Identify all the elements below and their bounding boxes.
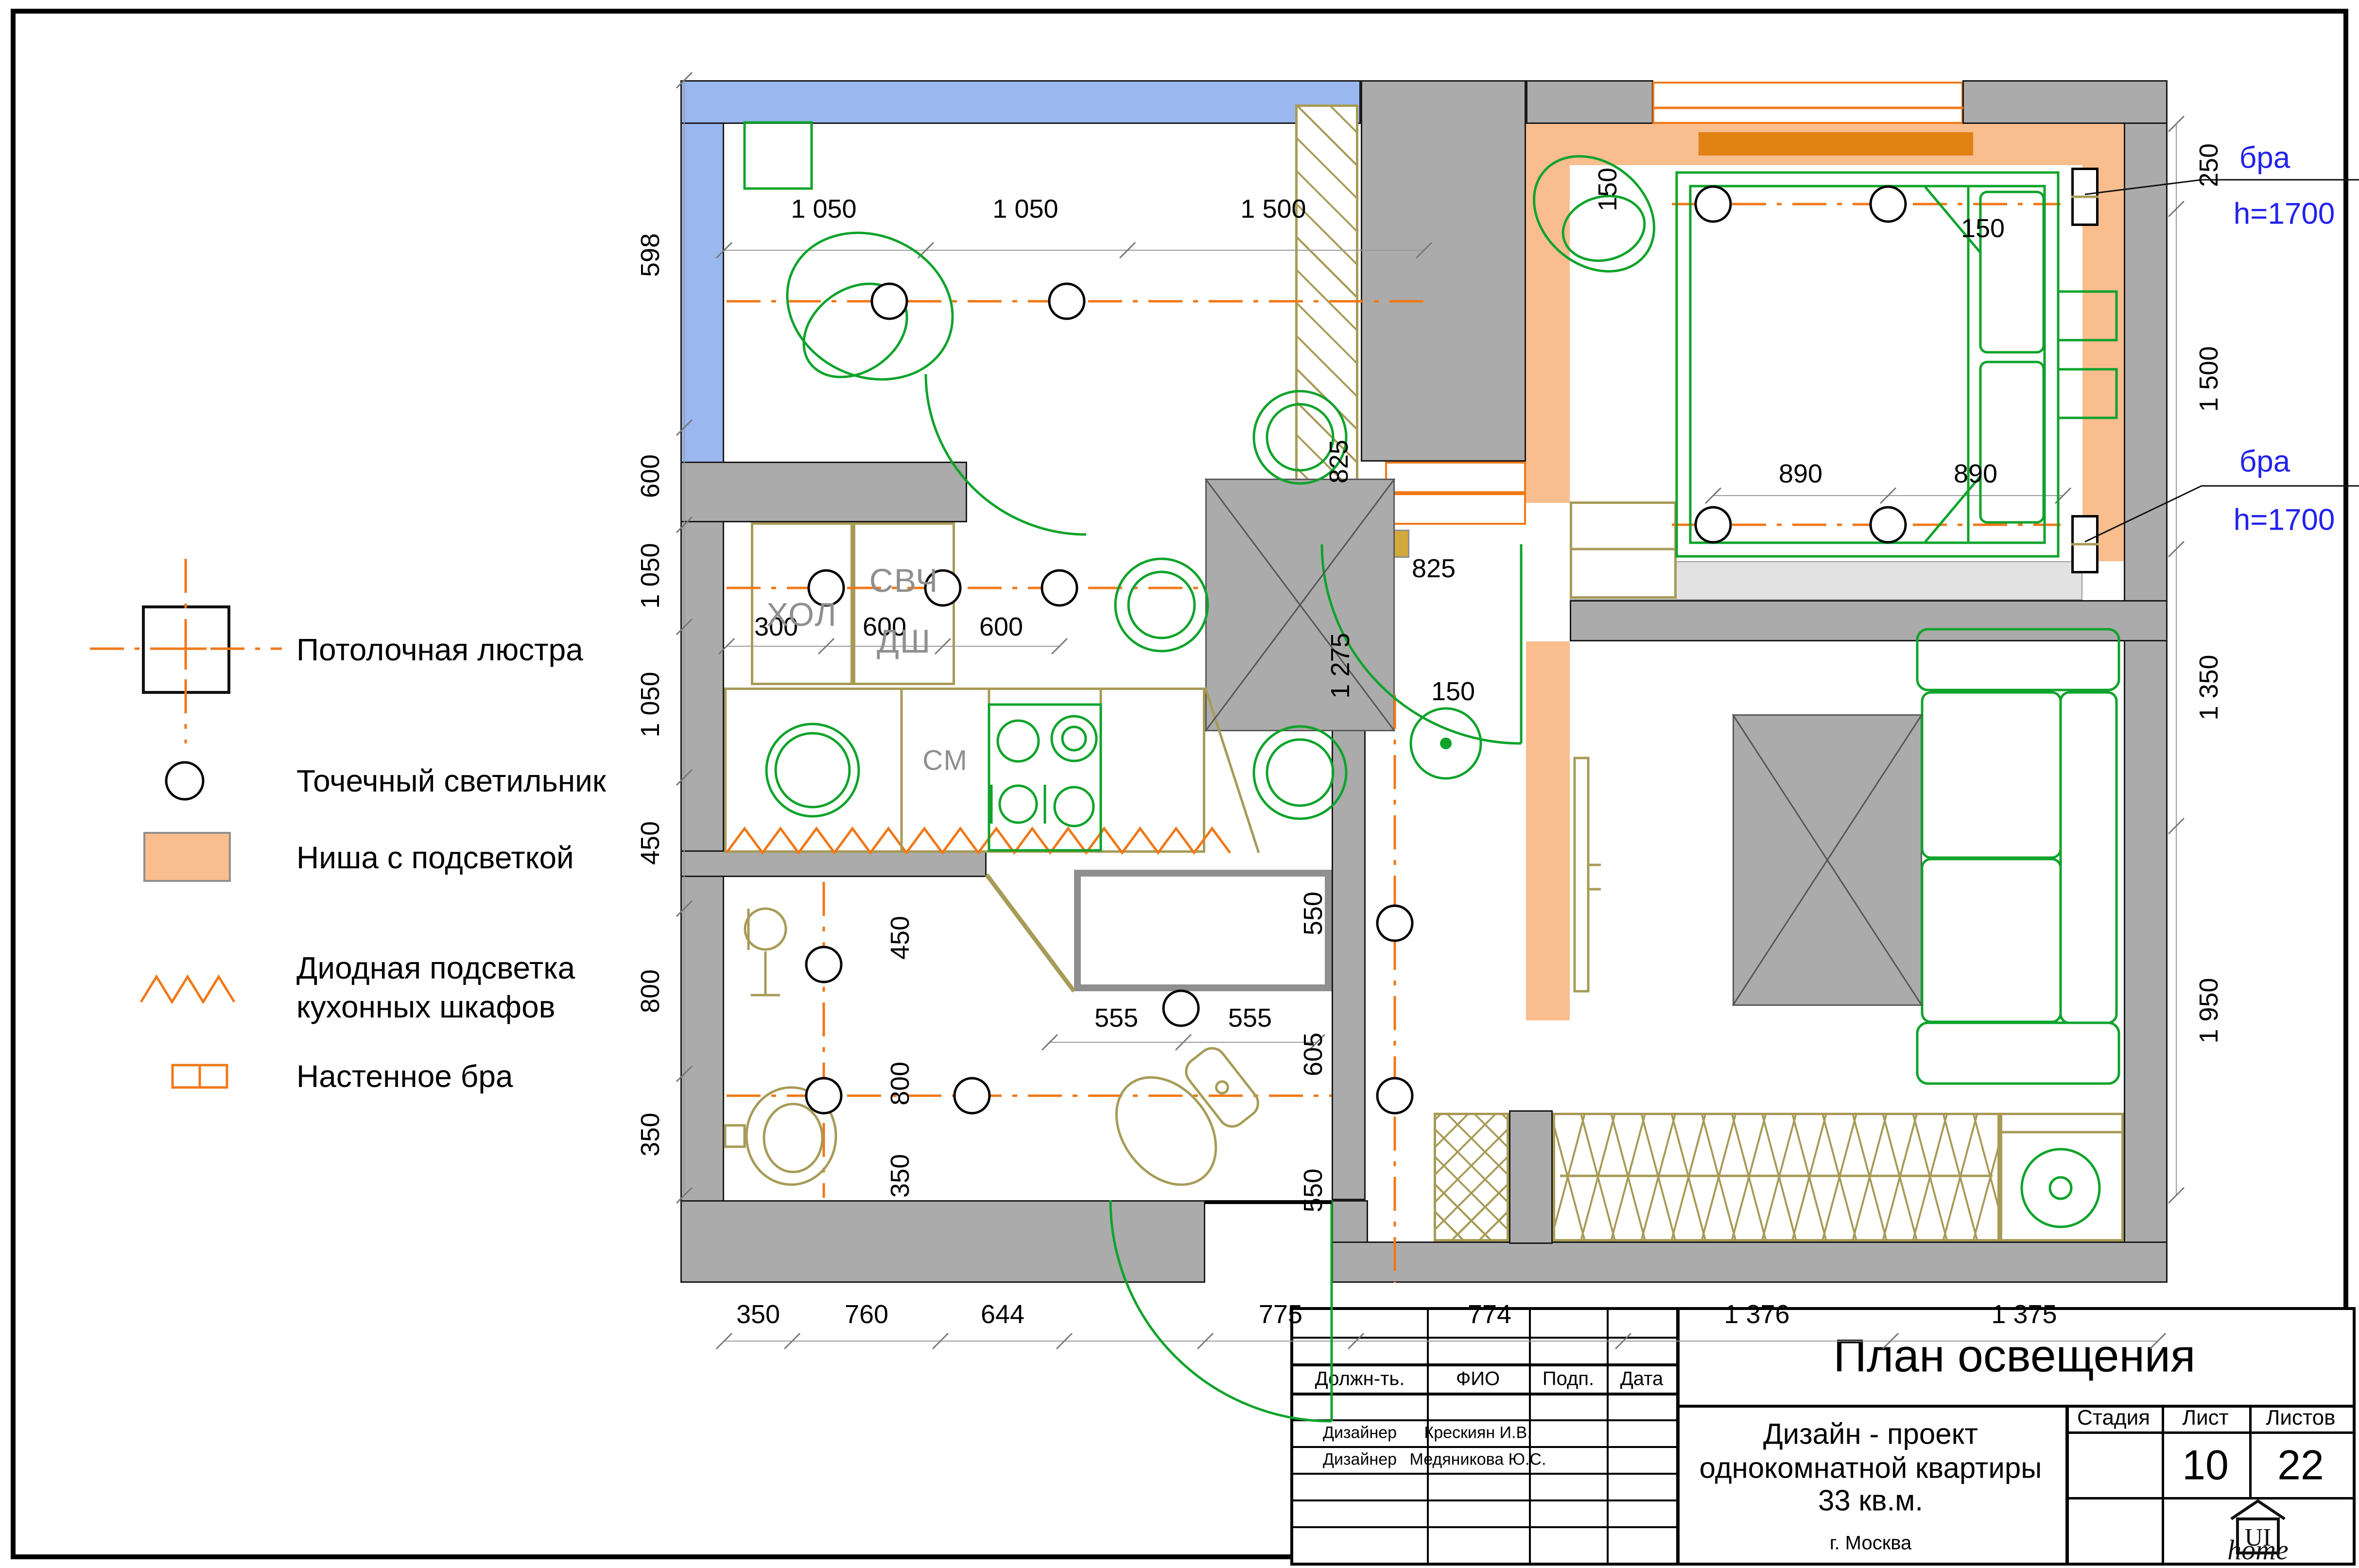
- legend-label-led-2: кухонных шкафов: [296, 989, 555, 1025]
- fixtures-tan: [725, 549, 2124, 1204]
- legend-label-sconce: Настенное бра: [296, 1058, 513, 1094]
- dim-label: 550: [1298, 1169, 1328, 1212]
- dim-label: 605: [1298, 1033, 1328, 1076]
- dim-label: 825: [1412, 553, 1456, 584]
- dim-label: 1 500: [2194, 346, 2224, 412]
- dim-label: 250: [2194, 143, 2224, 187]
- dim-label: 1 950: [2194, 978, 2224, 1043]
- stove-icon: [989, 705, 1101, 850]
- dim-label: 600: [635, 454, 665, 498]
- dim-label: 890: [1954, 459, 1997, 489]
- toilet-icon: [1096, 1028, 1275, 1204]
- shower-icon: [745, 909, 786, 995]
- legend-label-niche: Ниша с подсветкой: [296, 840, 574, 876]
- washer-counter-label: СМ: [922, 744, 968, 777]
- sconce-annotation-name: бра: [2239, 141, 2290, 175]
- dim-label: 450: [635, 821, 665, 865]
- dim-label: 1 376: [1724, 1299, 1789, 1329]
- dim-label: 598: [635, 233, 665, 277]
- dim-label: 1 050: [635, 543, 665, 608]
- sconce-annotation-height: h=1700: [2234, 503, 2335, 537]
- plant-bedroom: [1511, 133, 1677, 295]
- microwave-label: СВЧ: [869, 562, 939, 600]
- dim-label: 350: [736, 1299, 780, 1329]
- sconce-annotation-height: h=1700: [2234, 197, 2335, 231]
- tv-icon: [1575, 758, 1601, 991]
- dining-chairs: [1115, 391, 1346, 819]
- bed: [1677, 172, 2116, 556]
- legend-label-led-1: Диодная подсветка: [296, 950, 575, 986]
- door-arc-kitchen: [926, 374, 1086, 534]
- sconce-annotation-name: бра: [2239, 445, 2290, 479]
- dishwasher-label: ДШ: [877, 622, 931, 660]
- dim-label: 555: [1228, 1003, 1272, 1033]
- dim-label: 1 275: [1325, 633, 1355, 698]
- dim-label: 555: [1094, 1003, 1138, 1033]
- dim-label: 150: [1593, 168, 1623, 211]
- dim-label: 890: [1779, 459, 1822, 489]
- dim-label: 800: [885, 1062, 915, 1105]
- spot-light-legend-icon: [166, 762, 203, 799]
- dim-label: 1 050: [992, 194, 1058, 224]
- kitchen-sink-icon: [766, 724, 859, 816]
- legend-label-chandelier: Потолочная люстра: [296, 632, 583, 668]
- sofa: [1917, 629, 2119, 1084]
- fridge-label: ХОЛ: [766, 596, 837, 634]
- dim-label: 644: [981, 1299, 1024, 1329]
- dim-label: 350: [635, 1113, 665, 1156]
- drawing-sheet: План освещения Должн-ть. ФИО Подп. Дата …: [0, 0, 2359, 1568]
- dim-label: 600: [979, 612, 1023, 642]
- dim-label: 1 050: [791, 194, 856, 224]
- dim-label: 775: [1259, 1299, 1302, 1329]
- dim-label: 1 350: [2194, 655, 2224, 720]
- ceiling-light-hall: [1411, 708, 1481, 778]
- dim-label: 1 050: [635, 672, 665, 737]
- balcony-unit: [745, 122, 812, 189]
- dim-label: 150: [1431, 676, 1475, 706]
- dim-label: 800: [635, 969, 665, 1013]
- dim-label: 550: [1298, 892, 1328, 935]
- dim-label: 1 375: [1991, 1299, 2057, 1329]
- dim-label: 450: [885, 916, 915, 960]
- dim-label: 774: [1468, 1299, 1511, 1329]
- lighting-axes: [90, 108, 2061, 1283]
- plant-kitchen: [763, 207, 977, 406]
- legend-label-spot: Точечный светильник: [296, 763, 606, 799]
- dim-label: 1 500: [1240, 194, 1306, 224]
- dim-label: 760: [845, 1299, 888, 1329]
- dim-label: 350: [885, 1154, 915, 1198]
- dim-label: 150: [1961, 213, 2005, 243]
- washer-icon: [2022, 1149, 2099, 1227]
- dim-label: 825: [1324, 440, 1354, 483]
